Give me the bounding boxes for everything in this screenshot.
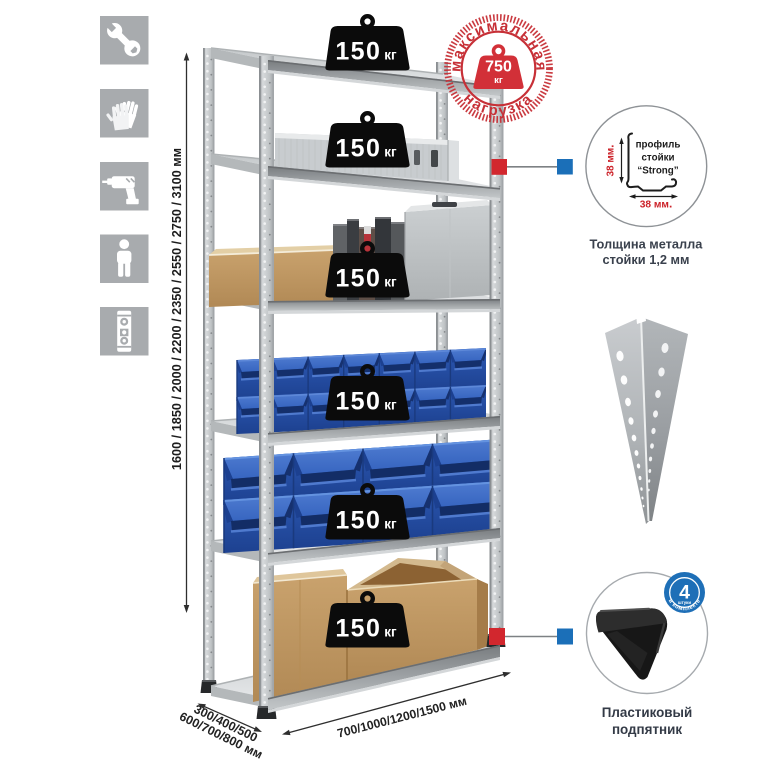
svg-text:Толщина металла: Толщина металла — [590, 237, 704, 252]
svg-text:штуки: штуки — [678, 600, 691, 605]
svg-text:профиль: профиль — [636, 140, 681, 151]
svg-text:подпятник: подпятник — [612, 722, 682, 737]
svg-text:стойки: стойки — [641, 153, 674, 164]
svg-text:“Strong”: “Strong” — [637, 166, 678, 177]
svg-text:750: 750 — [485, 59, 512, 76]
svg-text:кг: кг — [494, 75, 503, 86]
svg-text:38 мм.: 38 мм. — [640, 197, 673, 211]
svg-text:Пластиковый: Пластиковый — [602, 705, 692, 720]
svg-text:38 мм.: 38 мм. — [603, 144, 617, 176]
svg-text:1600 / 1850 / 2000 / 2200 / 23: 1600 / 1850 / 2000 / 2200 / 2350 / 2550 … — [170, 148, 184, 470]
svg-text:стойки 1,2 мм: стойки 1,2 мм — [602, 252, 689, 267]
